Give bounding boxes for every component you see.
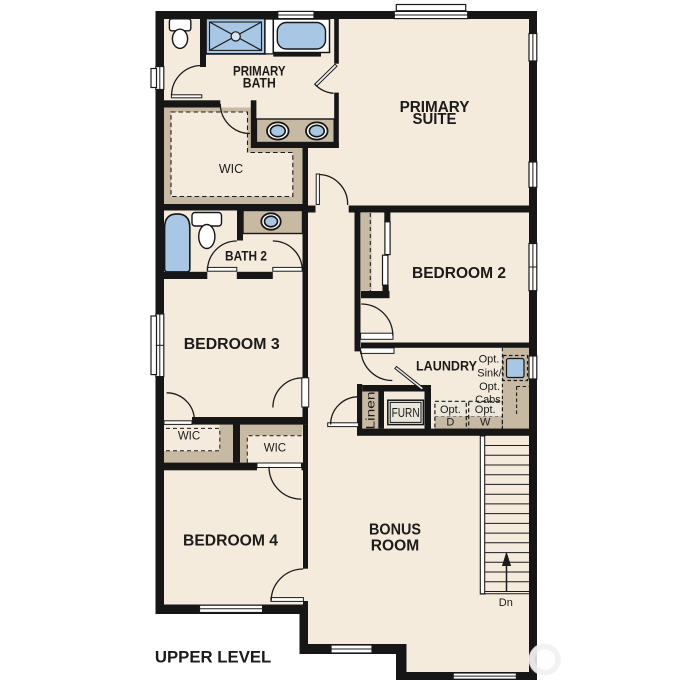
svg-text:WIC: WIC — [264, 443, 286, 455]
svg-text:Cabs.: Cabs. — [475, 394, 504, 406]
svg-text:BATH 2: BATH 2 — [225, 249, 267, 264]
svg-text:W: W — [480, 417, 491, 429]
svg-text:D: D — [446, 417, 454, 429]
svg-text:ROOM: ROOM — [371, 537, 419, 554]
svg-text:WIC: WIC — [178, 430, 200, 442]
svg-text:LAUNDRY: LAUNDRY — [416, 358, 477, 373]
svg-text:BEDROOM 3: BEDROOM 3 — [184, 336, 280, 353]
svg-text:BATH: BATH — [243, 75, 276, 91]
svg-text:Dn: Dn — [499, 597, 513, 609]
svg-text:WIC: WIC — [219, 162, 243, 176]
svg-text:BEDROOM 4: BEDROOM 4 — [183, 532, 278, 549]
svg-text:BEDROOM 2: BEDROOM 2 — [412, 265, 506, 282]
svg-text:Opt.: Opt. — [440, 404, 461, 416]
svg-text:SUITE: SUITE — [413, 111, 457, 128]
svg-text:UPPER LEVEL: UPPER LEVEL — [155, 648, 271, 667]
svg-text:Linen: Linen — [366, 392, 378, 430]
svg-text:Sink/: Sink/ — [477, 367, 502, 379]
svg-text:FURN: FURN — [392, 406, 420, 420]
svg-text:Opt.: Opt. — [479, 381, 500, 393]
svg-text:BONUS: BONUS — [369, 522, 421, 539]
svg-text:Opt.: Opt. — [479, 354, 500, 366]
